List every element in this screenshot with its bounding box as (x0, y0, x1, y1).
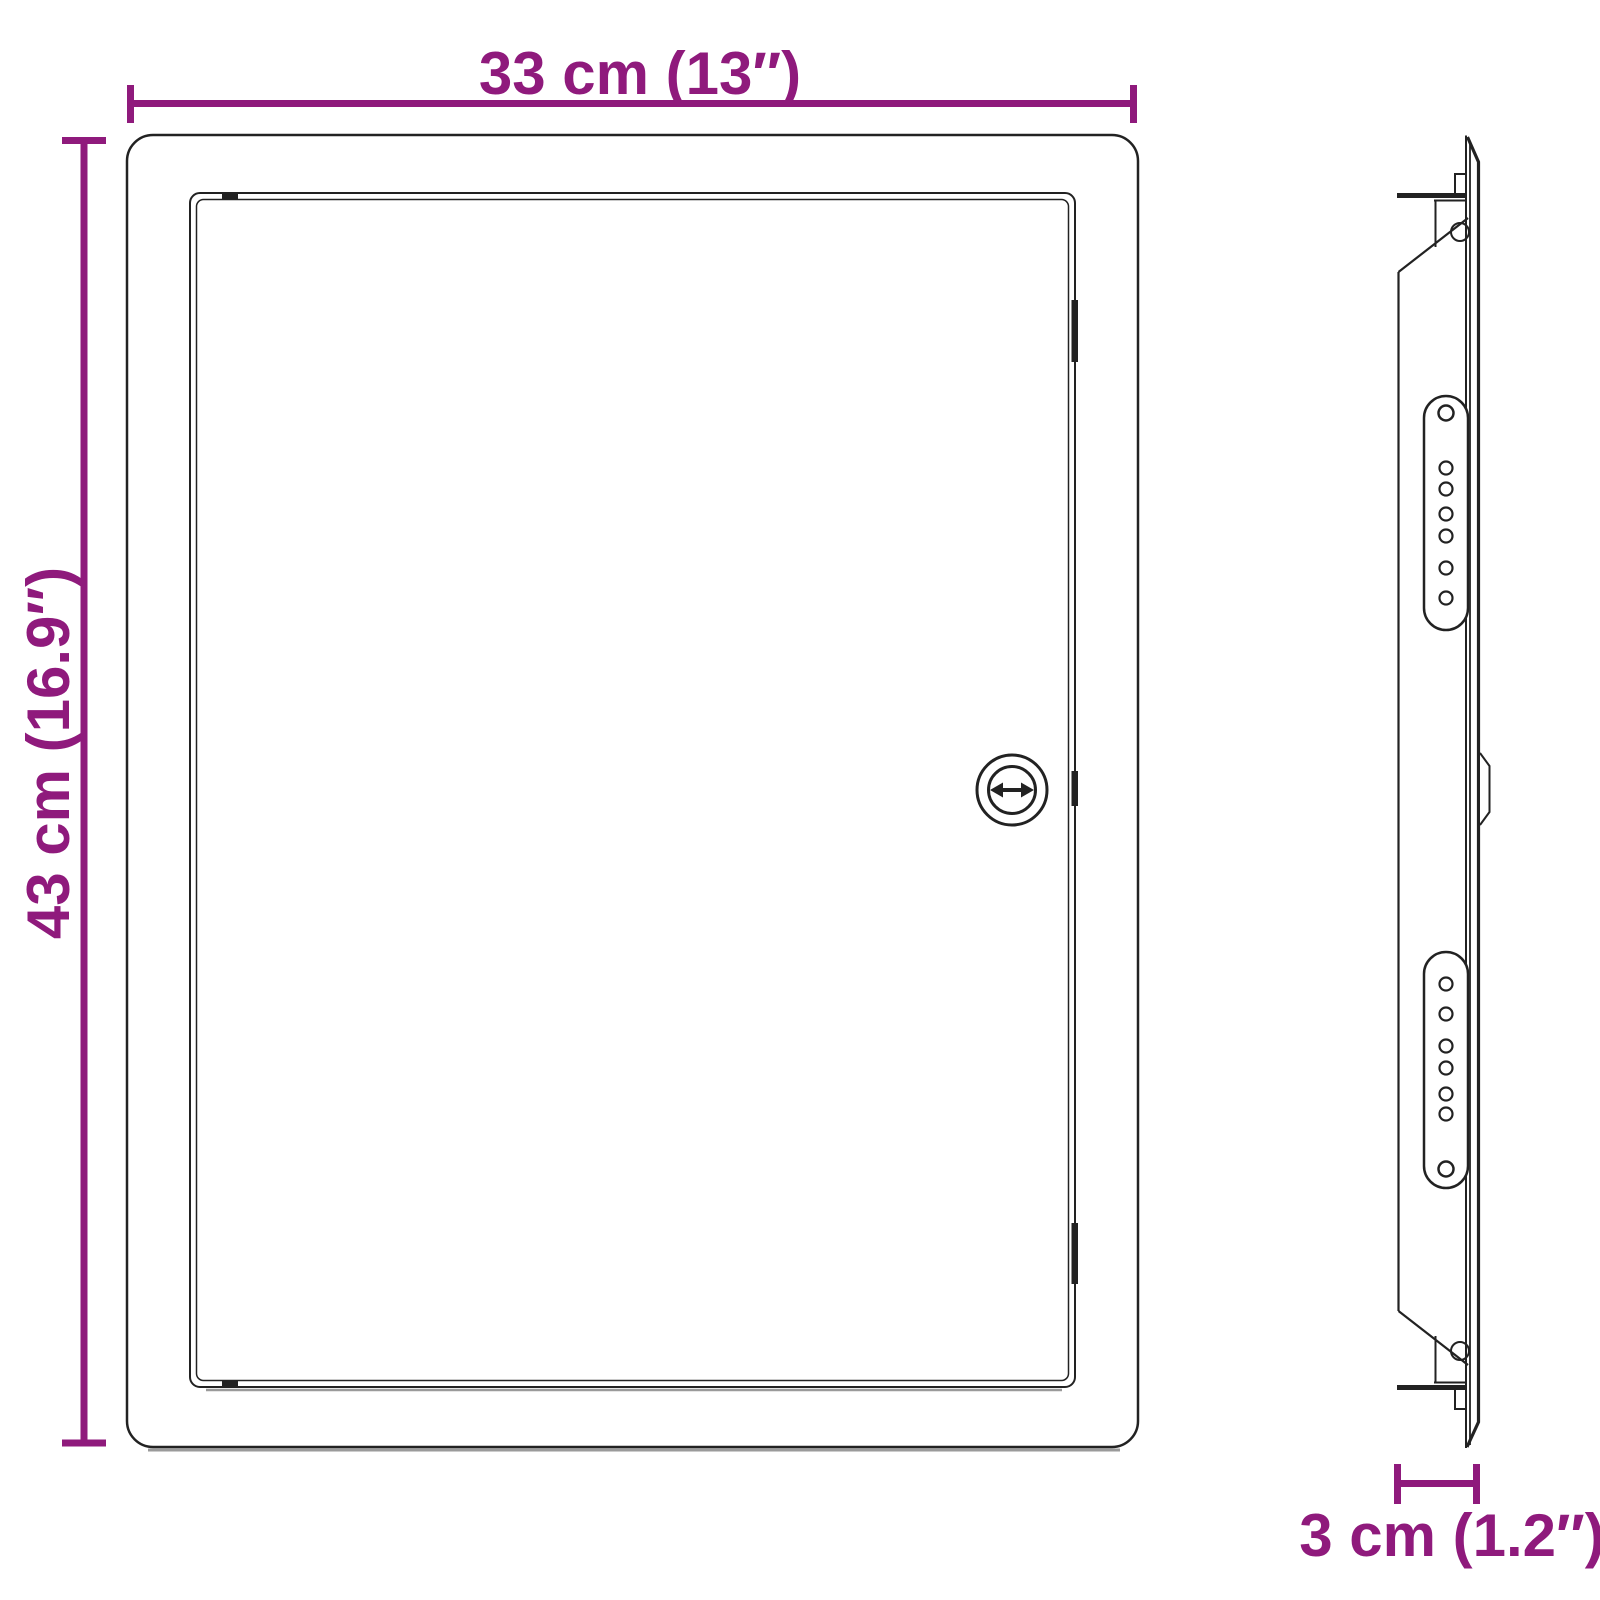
width-label: 33 cm (13″) (479, 40, 801, 107)
face-plate-front-edge (1467, 137, 1479, 1447)
product-dimension-diagram: 33 cm (13″) 43 cm (16.9″) 3 cm (1.2″) (0, 0, 1600, 1600)
bottom-bevel-line (1399, 1311, 1469, 1365)
top-bevel-line (1399, 218, 1469, 272)
width-dimension: 33 cm (13″) (128, 40, 1136, 123)
bottom-bracket (1397, 1311, 1469, 1409)
top-bracket (1397, 174, 1469, 272)
latch-mark-middle (1072, 771, 1079, 806)
lock (977, 755, 1047, 825)
height-dimension: 43 cm (16.9″) (15, 138, 106, 1445)
height-label: 43 cm (16.9″) (15, 567, 82, 939)
depth-label: 3 cm (1.2″) (1299, 1502, 1600, 1569)
technical-drawing: 33 cm (13″) 43 cm (16.9″) 3 cm (1.2″) (0, 0, 1600, 1600)
door-panel-outer (190, 193, 1075, 1387)
front-view-access-panel (127, 135, 1138, 1450)
latch-mark-bottom (1072, 1223, 1079, 1284)
depth-dimension: 3 cm (1.2″) (1299, 1464, 1600, 1569)
top-tab (1455, 174, 1466, 195)
lock-knob-side (1480, 753, 1490, 825)
top-hinge-mark (222, 192, 238, 199)
latch-mark-top (1072, 300, 1079, 362)
bottom-tab (1455, 1388, 1466, 1409)
bottom-hinge-mark (222, 1381, 238, 1388)
mounting-strap-top (1424, 396, 1468, 630)
mounting-strap-bottom (1424, 952, 1468, 1188)
side-view-access-panel (1397, 136, 1490, 1449)
